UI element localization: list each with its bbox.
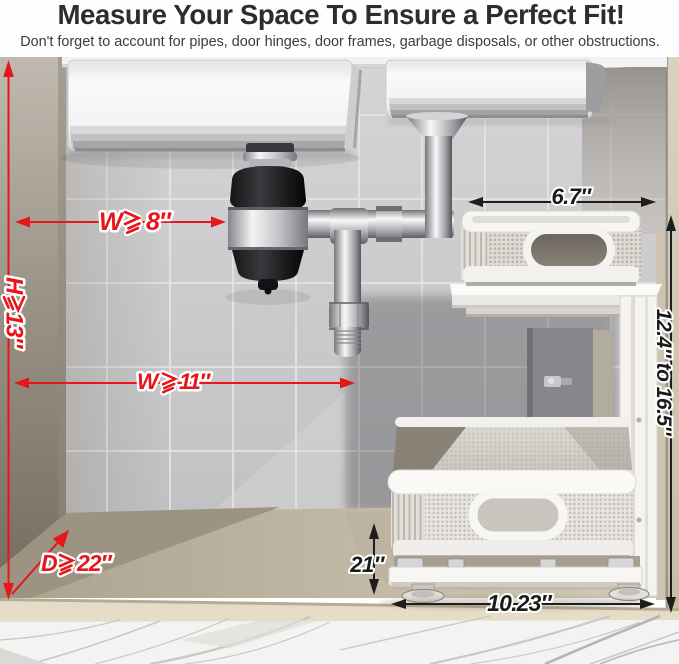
svg-text:Don't forget to account for pi: Don't forget to account for pipes, door … [20,34,660,50]
svg-text:11″: 11″ [179,369,211,394]
svg-text:13″: 13″ [1,312,28,350]
svg-text:22″: 22″ [76,550,113,576]
svg-text:12.4″ to 16.5″: 12.4″ to 16.5″ [652,309,675,437]
svg-text:D: D [41,550,57,576]
svg-text:W: W [137,369,160,394]
svg-text:W: W [99,208,125,236]
svg-text:10.23″: 10.23″ [487,590,553,616]
svg-text:H: H [1,277,28,295]
svg-text:Measure Your Space To Ensure a: Measure Your Space To Ensure a Perfect F… [57,0,624,30]
svg-text:8″: 8″ [146,208,172,236]
svg-text:21″: 21″ [349,552,385,577]
svg-text:6.7″: 6.7″ [551,184,592,209]
